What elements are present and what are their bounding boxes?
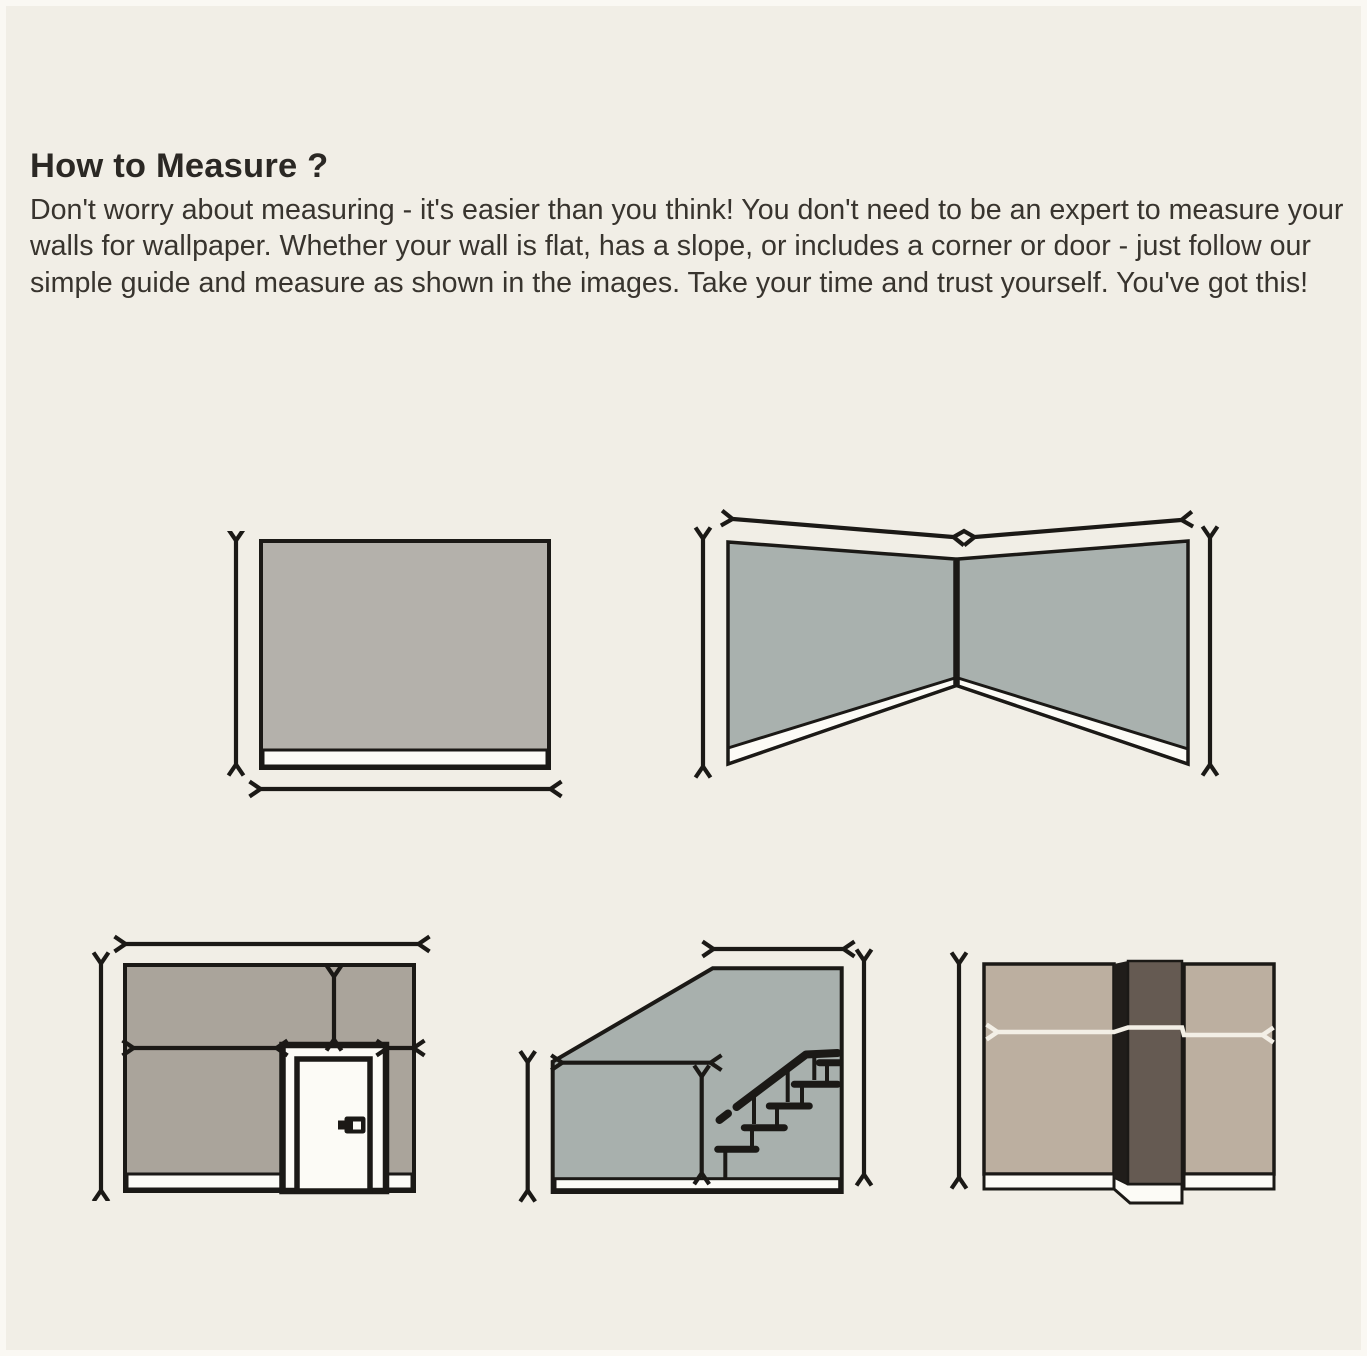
right-wall-width-arrow [975,520,1181,537]
diagram-wall-with-door [91,931,431,1201]
wall-surface [261,541,549,768]
left-wall-width-arrow [733,519,953,537]
right-baseboard [1184,1174,1274,1189]
page-title: How to Measure ? [30,148,328,186]
diagram-flat-wall [226,531,566,806]
how-to-measure-guide: How to Measure ? Don't worry about measu… [0,0,1367,1356]
baseboard-left [127,1174,282,1189]
column-side [1114,961,1128,1184]
left-baseboard [984,1174,1114,1189]
diagram-wall-with-staircase [511,936,886,1206]
left-wall-surface [984,964,1114,1174]
sloped-wall-surface [553,968,842,1192]
right-wall-surface [1184,964,1274,1174]
column-front [1128,961,1182,1184]
diagram-corner-wall [691,506,1231,796]
diagram-wall-with-column [946,951,1306,1211]
baseboard [555,1179,840,1190]
baseboard [263,750,547,766]
baseboard-right [386,1174,412,1189]
page-description: Don't worry about measuring - it's easie… [30,192,1356,301]
